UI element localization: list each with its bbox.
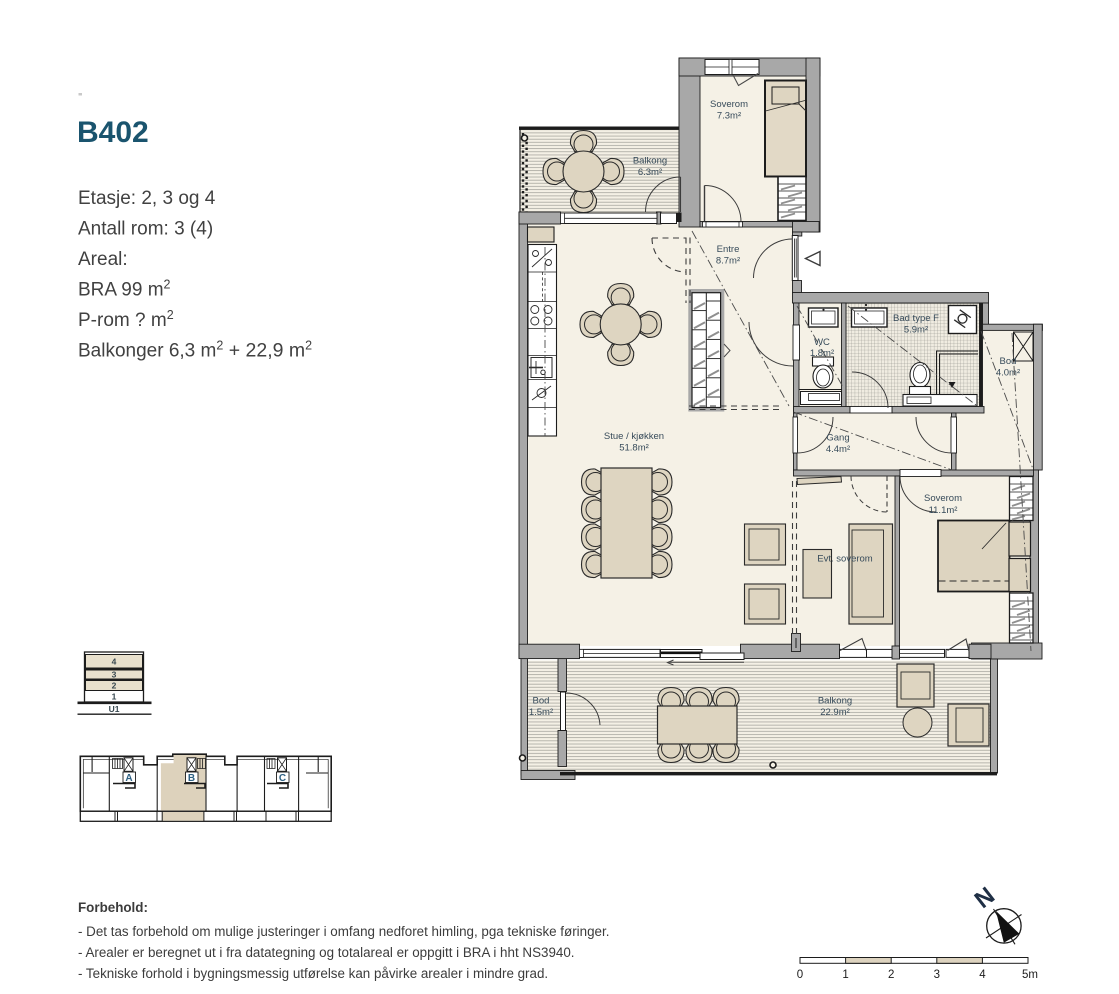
svg-text:Bod: Bod: [1000, 356, 1017, 367]
svg-text:1.8m²: 1.8m²: [810, 348, 834, 359]
svg-text:Bod: Bod: [533, 696, 550, 707]
svg-text:Balkong: Balkong: [633, 156, 667, 167]
svg-text:P-rom ? m2: P-rom ? m2: [78, 308, 174, 331]
svg-text:BRA 99 m2: BRA 99 m2: [78, 278, 171, 301]
svg-text:U1: U1: [109, 704, 120, 714]
svg-text:0: 0: [797, 969, 803, 981]
svg-text:Soverom: Soverom: [924, 493, 962, 504]
svg-text:5m: 5m: [1022, 969, 1038, 981]
svg-text:Etasje: 2, 3 og 4: Etasje: 2, 3 og 4: [78, 188, 216, 209]
svg-text:4.4m²: 4.4m²: [826, 444, 850, 455]
svg-text:Antall rom: 3 (4): Antall rom: 3 (4): [78, 219, 213, 240]
svg-text:1: 1: [112, 692, 117, 702]
svg-text:4.0m²: 4.0m²: [996, 368, 1020, 379]
svg-text:A: A: [125, 773, 132, 784]
svg-text:11.1m²: 11.1m²: [929, 505, 958, 516]
svg-text:Stue / kjøkken: Stue / kjøkken: [604, 431, 664, 442]
svg-text:1.5m²: 1.5m²: [529, 707, 553, 718]
svg-text:Entre: Entre: [717, 244, 740, 255]
svg-text:C: C: [279, 773, 286, 784]
svg-text:3: 3: [934, 969, 940, 981]
svg-text:Balkonger 6,3 m2 + 22,9 m2: Balkonger 6,3 m2 + 22,9 m2: [78, 339, 312, 362]
svg-text:8.7m²: 8.7m²: [716, 256, 740, 267]
svg-text:5.9m²: 5.9m²: [904, 325, 928, 336]
svg-text:Evt. soverom: Evt. soverom: [817, 554, 873, 565]
svg-text:4: 4: [979, 969, 986, 981]
svg-text:4: 4: [112, 657, 117, 667]
svg-text:B: B: [188, 773, 195, 784]
svg-text:51.8m²: 51.8m²: [619, 443, 649, 454]
svg-text:WC: WC: [814, 337, 830, 348]
svg-text:1: 1: [842, 969, 848, 981]
svg-text:2: 2: [888, 969, 894, 981]
svg-text:Bad type F: Bad type F: [893, 313, 939, 324]
svg-text:2: 2: [112, 681, 117, 691]
svg-text:Balkong: Balkong: [818, 696, 852, 707]
svg-text:22.9m²: 22.9m²: [820, 707, 850, 718]
svg-text:B402: B402: [77, 116, 149, 149]
svg-text:- Tekniske forhold i bygnings: - Tekniske forhold i bygningsmessig utfø…: [78, 966, 548, 981]
svg-text:6.3m²: 6.3m²: [638, 167, 662, 178]
svg-text:Forbehold:: Forbehold:: [78, 900, 148, 915]
svg-text:- Arealer er beregnet ut i fr: - Arealer er beregnet ut i fra datategni…: [78, 945, 575, 960]
svg-text:Gang: Gang: [826, 433, 849, 444]
svg-text:Areal:: Areal:: [78, 249, 128, 270]
svg-text:Soverom: Soverom: [710, 99, 748, 110]
svg-text:3: 3: [112, 670, 117, 680]
svg-text:- Det tas forbehold om mulige: - Det tas forbehold om mulige justeringe…: [78, 924, 609, 939]
svg-text:7.3m²: 7.3m²: [717, 111, 741, 122]
